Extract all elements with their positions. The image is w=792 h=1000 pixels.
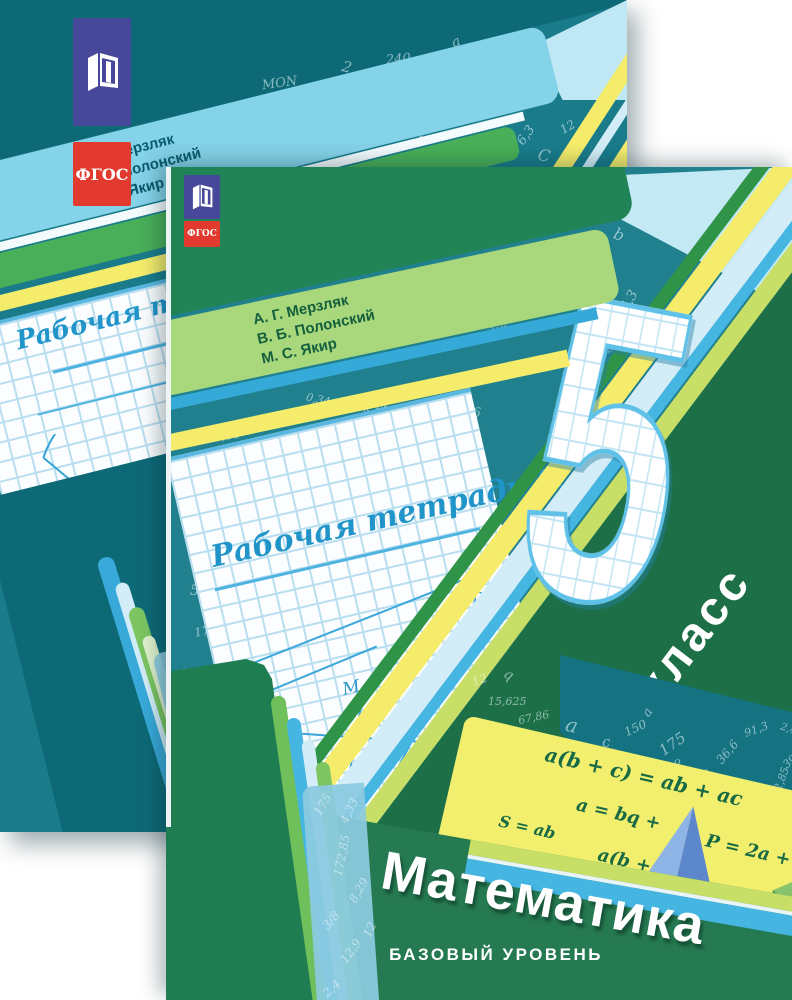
back-fgos-badge: ФГОС (73, 142, 131, 206)
book-subtitle: БАЗОВЫЙ УРОВЕНЬ (389, 945, 603, 965)
back-publisher-logo (73, 18, 131, 126)
math-pattern-glyph: C (536, 145, 551, 166)
math-pattern-glyph: 15,625 (488, 695, 527, 708)
front-publisher-logo (184, 175, 220, 219)
math-pattern-glyph: 67,86 (517, 708, 551, 727)
math-pattern-glyph: 175 (311, 791, 335, 818)
math-pattern-glyph: 8,29 (346, 875, 372, 905)
math-pattern-glyph: 2,4 (320, 977, 343, 1000)
math-pattern-glyph: 3/8 (319, 908, 342, 932)
math-pattern-glyph: 172,85 (331, 833, 353, 877)
math-pattern-glyph: 12,9 (337, 936, 364, 966)
prosveshchenie-flag-icon (82, 50, 122, 94)
math-pattern-glyph: 4,33 (337, 796, 361, 826)
math-pattern-glyph: 12 (470, 671, 489, 689)
product-photo: MON0,34522400,80159°3b6,3Ca120,5дм²31,48… (0, 0, 792, 1000)
formula-text: S = ab (497, 811, 557, 842)
front-page-edge (166, 167, 171, 827)
prosveshchenie-flag-icon (189, 182, 215, 212)
front-fgos-badge: ФГОС (184, 221, 220, 247)
front-workbook-cover: 224030,34559°b178,2πдм²6,3C12a3⊿0,343361… (166, 167, 792, 1000)
